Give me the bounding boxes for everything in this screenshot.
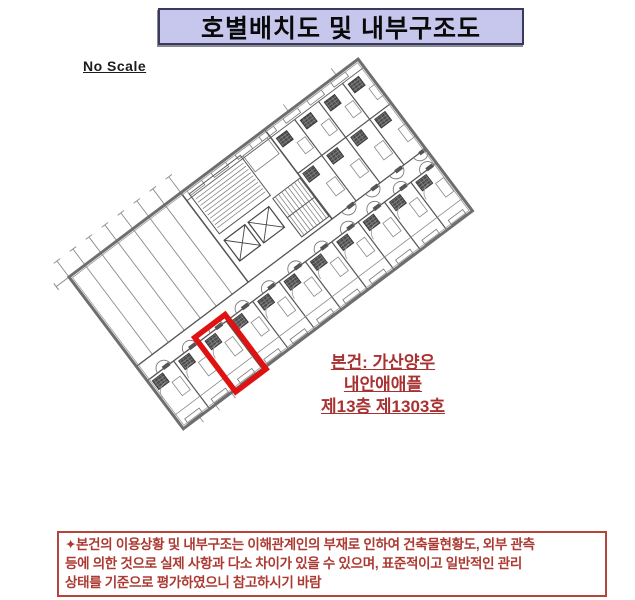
floor-plan-area	[38, 48, 598, 518]
floor-plan-drawing	[38, 48, 598, 518]
subject-annotation-line1: 본건: 가산양우	[277, 352, 489, 374]
disclaimer-line3: 상태를 기준으로 평가하였으니 참고하시기 바람	[65, 573, 599, 592]
subject-annotation-line3: 제13층 제1303호	[277, 396, 489, 418]
subject-annotation: 본건: 가산양우 내안애애플 제13층 제1303호	[277, 352, 489, 418]
subject-unit-highlight	[195, 315, 266, 392]
disclaimer-line2: 등에 의한 것으로 실제 사항과 다소 차이가 있을 수 있으며, 표준적이고 …	[65, 554, 599, 573]
subject-annotation-line2: 내안애애플	[277, 374, 489, 396]
disclaimer-line1: ✦본건의 이용상황 및 내부구조는 이해관계인의 부재로 인하여 건축물현황도,…	[65, 535, 599, 554]
page-title-text: 호별배치도 및 내부구조도	[201, 9, 481, 45]
page-title: 호별배치도 및 내부구조도	[158, 8, 524, 45]
appraisal-document-page: { "header": { "title": "호별배치도 및 내부구조도", …	[0, 0, 635, 600]
disclaimer-box: ✦본건의 이용상황 및 내부구조는 이해관계인의 부재로 인하여 건축물현황도,…	[57, 531, 607, 597]
